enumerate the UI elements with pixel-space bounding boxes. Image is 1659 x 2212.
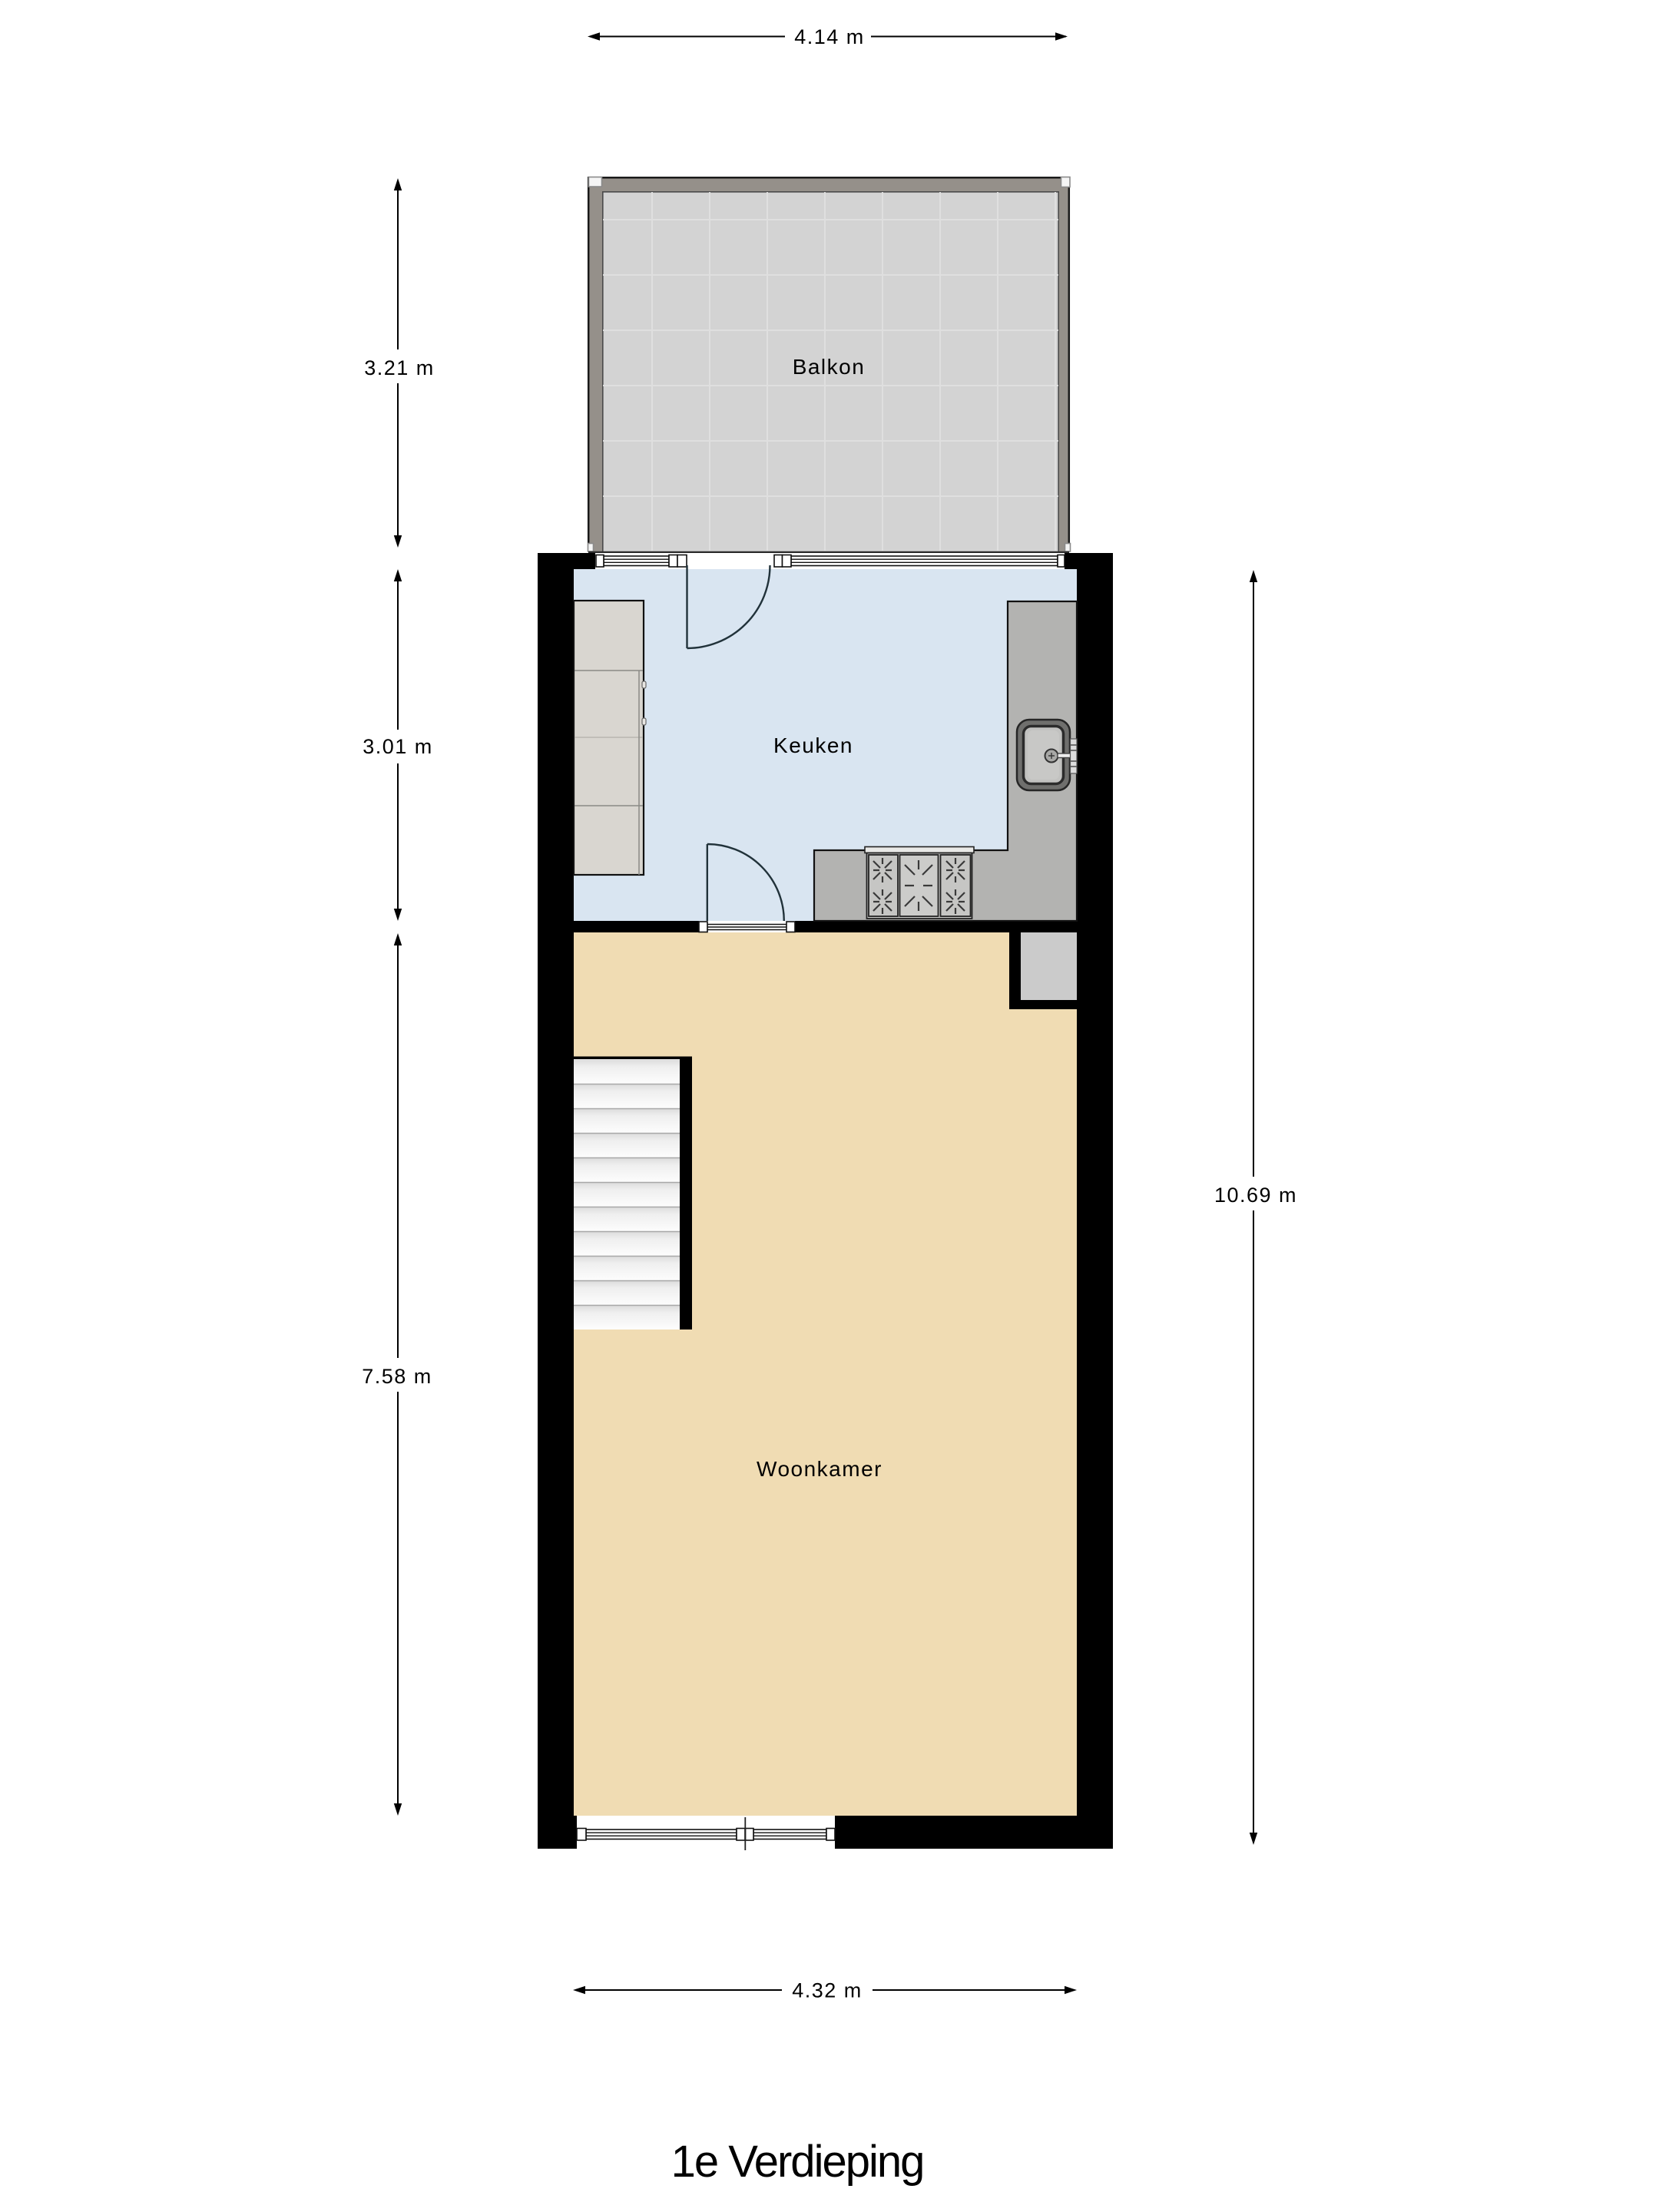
svg-text:Keuken: Keuken — [773, 733, 853, 757]
svg-text:1e Verdieping: 1e Verdieping — [671, 2137, 924, 2187]
svg-text:Woonkamer: Woonkamer — [757, 1457, 882, 1481]
svg-text:3.01 m: 3.01 m — [363, 735, 433, 758]
svg-text:10.69 m: 10.69 m — [1214, 1184, 1297, 1207]
svg-text:Balkon: Balkon — [793, 355, 866, 379]
svg-text:4.32 m: 4.32 m — [792, 1979, 863, 2002]
svg-text:4.14 m: 4.14 m — [794, 25, 865, 48]
svg-text:7.58 m: 7.58 m — [362, 1365, 432, 1388]
svg-text:3.21 m: 3.21 m — [364, 356, 435, 379]
